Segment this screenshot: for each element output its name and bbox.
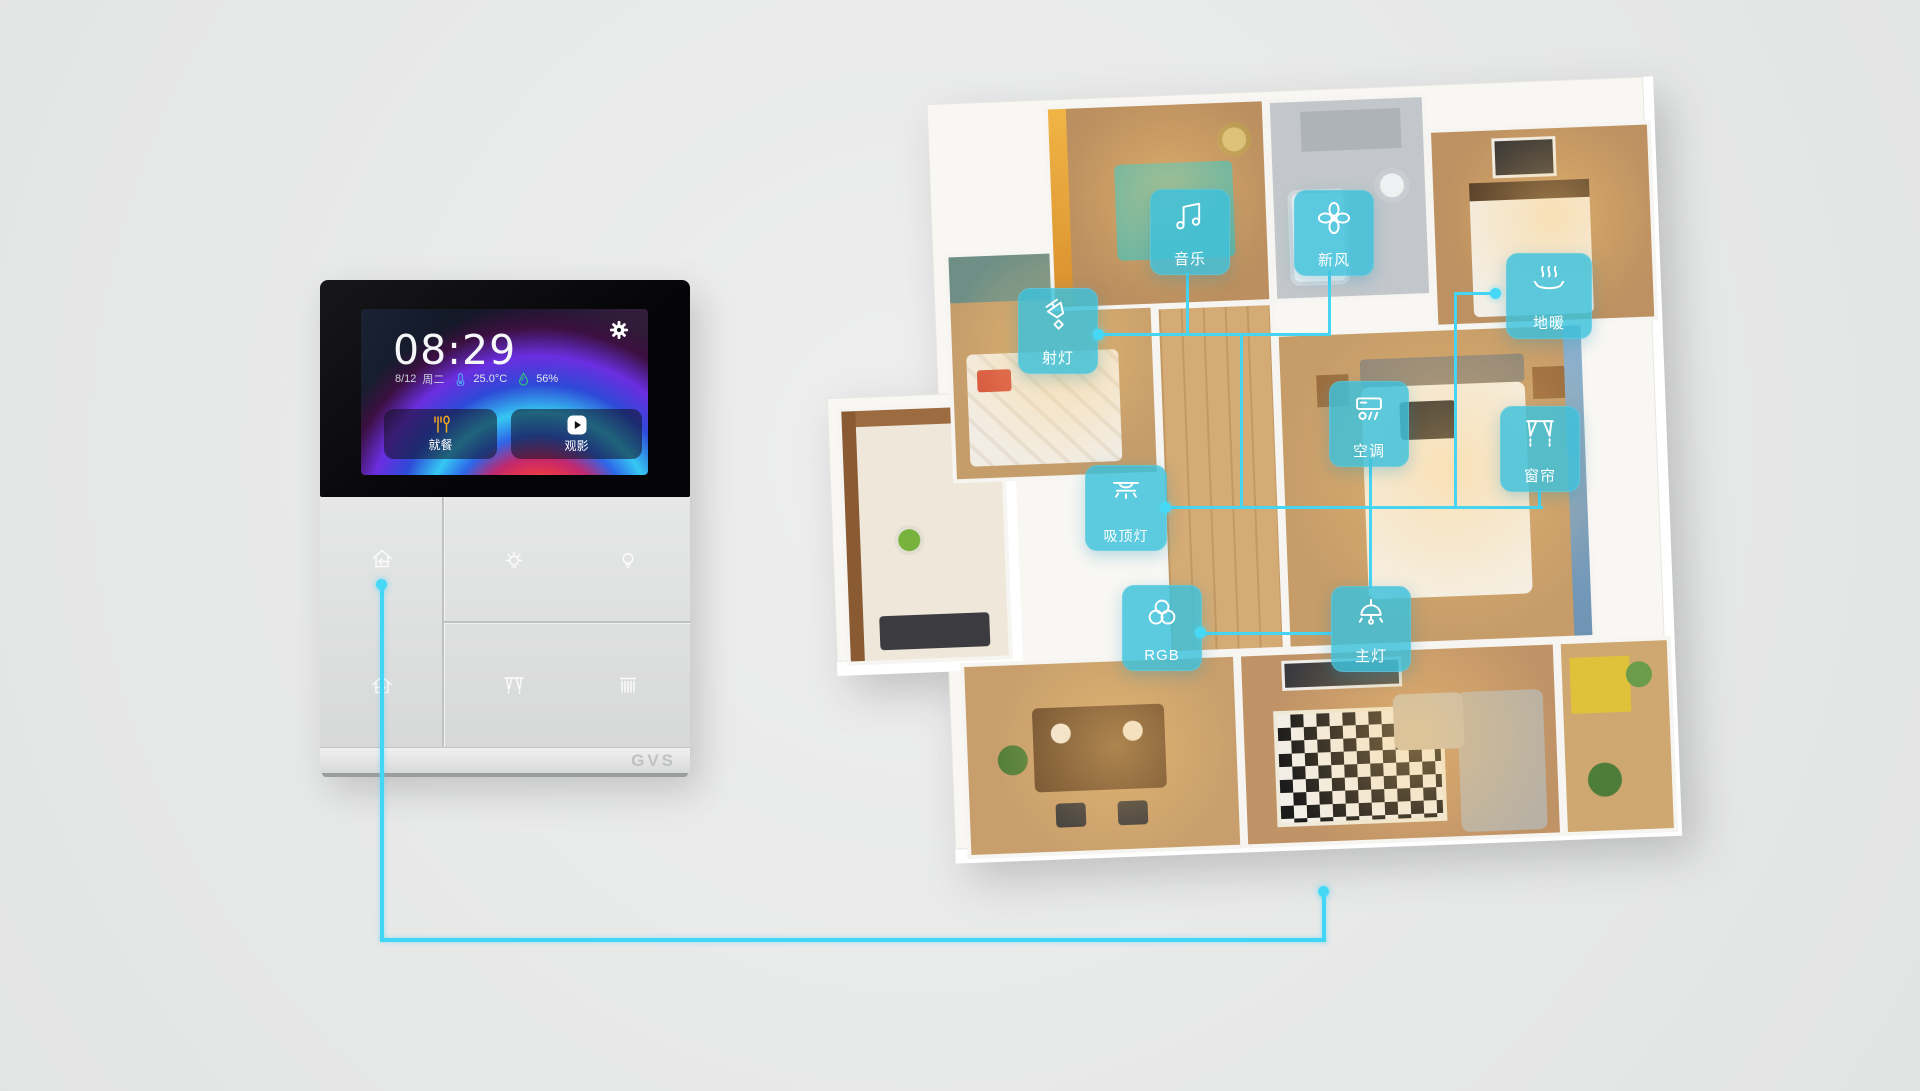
line-ac-mainlight bbox=[1369, 459, 1372, 588]
stage: 08:29 8/12 周二 25.0°C bbox=[0, 0, 1920, 1091]
badge-curtain[interactable]: 窗帘 bbox=[1500, 406, 1580, 492]
plant bbox=[1587, 762, 1622, 797]
connector-dot-panel bbox=[376, 579, 387, 590]
badge-music[interactable]: 音乐 bbox=[1150, 189, 1230, 275]
plant bbox=[1625, 661, 1652, 688]
date-label: 8/12 bbox=[395, 373, 416, 385]
furniture bbox=[879, 612, 990, 650]
curtain-icon bbox=[500, 671, 528, 699]
badge-curtain-label: 窗帘 bbox=[1524, 469, 1556, 485]
badge-music-label: 音乐 bbox=[1174, 252, 1206, 268]
furniture bbox=[1300, 108, 1401, 152]
dot-spotlight bbox=[1093, 329, 1104, 340]
washer bbox=[1374, 168, 1409, 203]
line-mid-vertical bbox=[1240, 334, 1243, 509]
ac-icon bbox=[1347, 387, 1391, 431]
connector-dot-plan bbox=[1318, 886, 1329, 897]
badge-ceiling-light[interactable]: 吸顶灯 bbox=[1085, 465, 1167, 551]
key-brightness[interactable] bbox=[484, 529, 544, 589]
fan-icon bbox=[1312, 196, 1356, 240]
room-glow bbox=[1241, 645, 1560, 845]
temperature-value: 25.0°C bbox=[473, 373, 507, 385]
dot-ceiling-light bbox=[1160, 502, 1171, 513]
brand-logo: GVS bbox=[631, 751, 676, 771]
panel-bottom-strip: GVS bbox=[320, 747, 690, 773]
connector-panel-rise bbox=[1322, 893, 1326, 942]
connector-panel-vertical bbox=[380, 584, 384, 940]
pendant-light-icon bbox=[1349, 592, 1393, 636]
thermometer-icon bbox=[454, 372, 467, 386]
humidity-value: 56% bbox=[536, 373, 558, 385]
furniture bbox=[841, 411, 865, 661]
connector-panel-horizontal bbox=[380, 938, 1326, 942]
badge-ac-label: 空调 bbox=[1353, 444, 1385, 460]
shelf bbox=[1569, 656, 1631, 714]
line-freshair-drop bbox=[1328, 271, 1331, 335]
dot-floor-heating bbox=[1490, 288, 1501, 299]
curtain-icon bbox=[1518, 412, 1562, 456]
utensils-icon bbox=[430, 415, 452, 434]
status-row: 8/12 周二 25.0°C bbox=[395, 371, 558, 387]
key-bulb[interactable] bbox=[598, 529, 658, 589]
rgb-circles-icon bbox=[1140, 591, 1184, 635]
clock-time: 08:29 bbox=[393, 326, 516, 374]
blinds-icon bbox=[614, 671, 642, 699]
smart-panel: 08:29 8/12 周二 25.0°C bbox=[320, 280, 690, 777]
humidity-icon bbox=[517, 372, 530, 386]
badge-floor-heating-label: 地暖 bbox=[1533, 316, 1565, 332]
spotlight-icon bbox=[1036, 294, 1080, 338]
panel-screen[interactable]: 08:29 8/12 周二 25.0°C bbox=[361, 309, 648, 475]
floor-heating-icon bbox=[1527, 259, 1571, 303]
dot-rgb bbox=[1195, 627, 1206, 638]
scene-row: 就餐 观影 bbox=[384, 409, 642, 459]
gear-icon[interactable] bbox=[607, 318, 631, 342]
badge-spotlight-label: 射灯 bbox=[1042, 351, 1074, 367]
badge-floor-heating[interactable]: 地暖 bbox=[1506, 253, 1592, 339]
weekday-label: 周二 bbox=[422, 371, 444, 387]
line-rgb-row bbox=[1200, 632, 1333, 635]
line-ceiling-row bbox=[1165, 506, 1543, 509]
badge-fresh-air[interactable]: 新风 bbox=[1294, 190, 1374, 276]
badge-fresh-air-label: 新风 bbox=[1318, 253, 1350, 269]
furniture bbox=[898, 529, 921, 552]
badge-rgb[interactable]: RGB bbox=[1122, 585, 1202, 671]
line-spotlight-row bbox=[1098, 333, 1331, 336]
scene-movie-label: 观影 bbox=[564, 437, 588, 454]
badge-main-light-label: 主灯 bbox=[1355, 649, 1387, 665]
scene-dining-button[interactable]: 就餐 bbox=[384, 409, 497, 459]
key-blinds[interactable] bbox=[598, 655, 658, 715]
badge-spotlight[interactable]: 射灯 bbox=[1018, 288, 1098, 374]
line-heating-stub bbox=[1454, 292, 1494, 295]
panel-bottom-edge bbox=[322, 773, 688, 777]
ceiling-light-icon bbox=[1104, 471, 1148, 515]
room-balcony bbox=[1557, 636, 1678, 836]
room-dining bbox=[960, 653, 1244, 859]
badge-rgb-label: RGB bbox=[1144, 648, 1180, 664]
bulb-icon bbox=[614, 545, 642, 573]
badge-ac[interactable]: 空调 bbox=[1329, 381, 1409, 467]
play-icon bbox=[567, 415, 587, 435]
badge-ceiling-light-label: 吸顶灯 bbox=[1104, 528, 1149, 544]
home-in-icon bbox=[368, 545, 396, 573]
room-glow bbox=[964, 657, 1240, 855]
music-note-icon bbox=[1168, 195, 1212, 239]
scene-movie-button[interactable]: 观影 bbox=[511, 409, 642, 459]
brightness-icon bbox=[500, 545, 528, 573]
key-curtain[interactable] bbox=[484, 655, 544, 715]
scene-dining-label: 就餐 bbox=[428, 436, 452, 453]
line-music-drop bbox=[1186, 272, 1189, 335]
panel-bezel: 08:29 8/12 周二 25.0°C bbox=[320, 280, 690, 497]
line-heating-vertical bbox=[1454, 292, 1457, 508]
badge-main-light[interactable]: 主灯 bbox=[1331, 586, 1411, 672]
key-divider-horizontal bbox=[444, 621, 690, 623]
